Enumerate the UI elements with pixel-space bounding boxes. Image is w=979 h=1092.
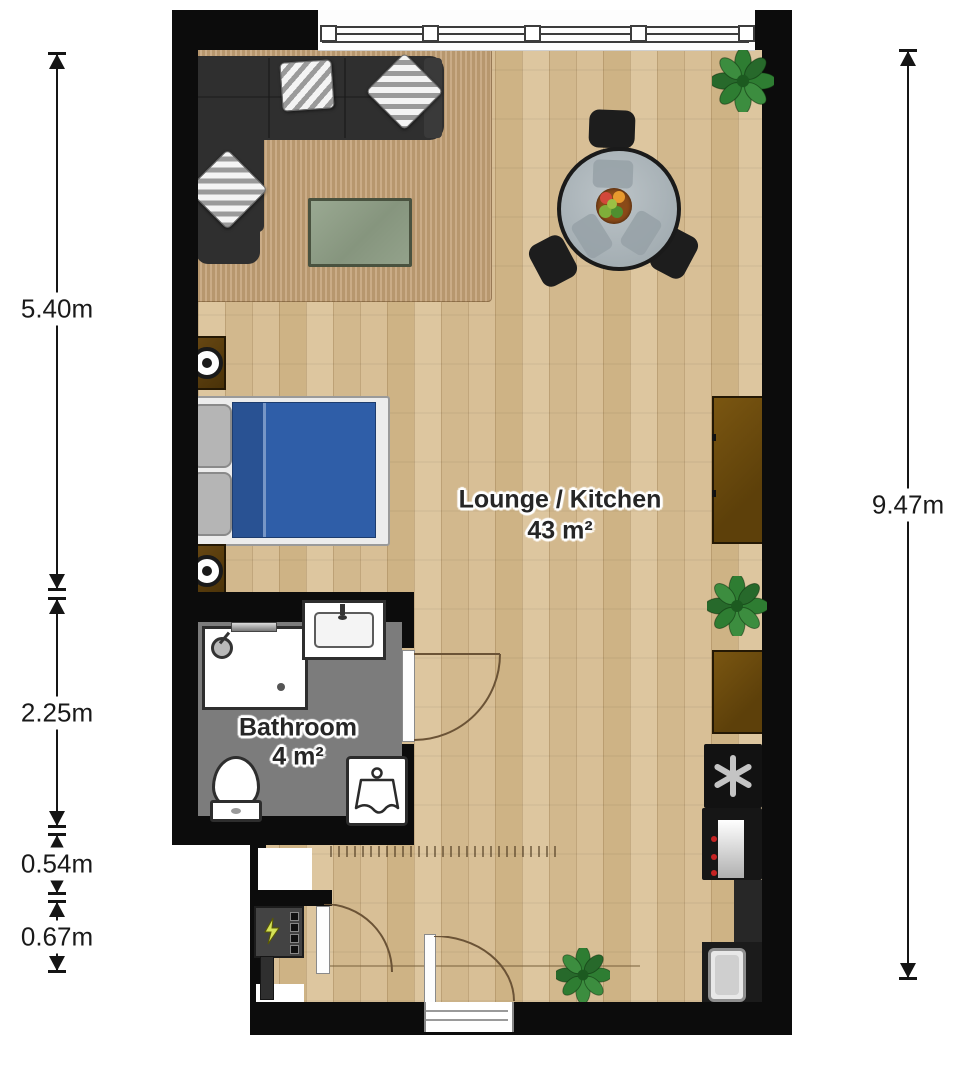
sideboard-icon bbox=[712, 650, 766, 734]
sofa-seam bbox=[344, 58, 346, 138]
plant-icon bbox=[556, 948, 610, 1002]
lamp-center bbox=[202, 358, 212, 368]
lamp-center bbox=[202, 566, 212, 576]
coffee-table-icon bbox=[308, 198, 412, 267]
electrical-panel-icon bbox=[254, 906, 304, 958]
dim-arrow-down bbox=[49, 956, 65, 971]
duvet-fold bbox=[263, 403, 266, 537]
duvet-icon bbox=[232, 402, 376, 538]
exterior-wall-left bbox=[172, 10, 198, 845]
placemat bbox=[593, 159, 634, 188]
fruit bbox=[607, 199, 617, 209]
sideboard-icon bbox=[712, 396, 766, 544]
floor-fringe bbox=[330, 846, 562, 857]
shower-icon bbox=[202, 626, 308, 710]
cable-duct bbox=[260, 956, 274, 1000]
drain bbox=[277, 683, 285, 691]
burner-knob bbox=[711, 836, 717, 842]
dim-arrow-down bbox=[49, 811, 65, 826]
lounge-area-label: 43 m² bbox=[527, 517, 592, 546]
bathroom-area-label: 4 m² bbox=[272, 743, 323, 772]
oven-door bbox=[718, 820, 744, 878]
dimension-label: 0.54m bbox=[17, 848, 97, 881]
entrance-threshold bbox=[424, 1002, 514, 1032]
kitchen-sink-unit bbox=[702, 942, 762, 1002]
dim-arrow-down bbox=[900, 963, 916, 978]
bed-pillow-icon bbox=[192, 404, 232, 468]
door-swing-arc-icon bbox=[414, 652, 506, 746]
window-mullion bbox=[738, 25, 755, 42]
bathroom-label: Bathroom bbox=[239, 714, 357, 743]
burner-knob bbox=[711, 854, 717, 860]
dimension-label: 2.25m bbox=[17, 697, 97, 730]
striped-pillow-icon bbox=[279, 59, 334, 112]
contact bbox=[290, 945, 299, 954]
sofa-seam bbox=[268, 58, 270, 138]
handle bbox=[712, 490, 716, 497]
toilet-tank bbox=[210, 800, 262, 822]
asterisk-icon bbox=[711, 754, 755, 798]
lightning-bolt-icon bbox=[262, 917, 282, 945]
lounge-label: Lounge / Kitchen bbox=[459, 486, 662, 515]
flush-button bbox=[231, 808, 241, 814]
window-icon bbox=[318, 10, 755, 51]
threshold-line bbox=[426, 1019, 508, 1021]
window-mullion bbox=[422, 25, 439, 42]
contact bbox=[290, 934, 299, 943]
burner-knob bbox=[711, 870, 717, 876]
dim-arrow-up bbox=[49, 54, 65, 69]
outside-area bbox=[150, 845, 250, 1035]
hall-door-header-wall bbox=[250, 890, 332, 906]
bed-pillow-icon bbox=[192, 472, 232, 536]
window-mullion bbox=[320, 25, 337, 42]
oven-icon bbox=[702, 808, 762, 880]
contact bbox=[290, 912, 299, 921]
contact bbox=[290, 923, 299, 932]
exterior-wall-bottom bbox=[250, 1002, 792, 1035]
dining-chair-icon bbox=[588, 109, 635, 149]
kitchen-sink-icon bbox=[708, 948, 746, 1002]
dim-arrow-up bbox=[49, 599, 65, 614]
corner-sofa-foot bbox=[196, 228, 260, 264]
fruit-bowl-icon bbox=[596, 188, 632, 224]
freezer-asterisk-icon bbox=[704, 744, 762, 808]
kitchen-counter-icon bbox=[734, 880, 762, 942]
dimension-label: 0.67m bbox=[17, 921, 97, 954]
dim-arrow-up bbox=[900, 51, 916, 66]
window-mullion bbox=[630, 25, 647, 42]
wall-niche bbox=[258, 848, 312, 890]
exterior-wall-right bbox=[762, 10, 792, 1035]
plant-icon bbox=[712, 50, 774, 112]
washing-machine-icon bbox=[346, 756, 408, 826]
threshold-line bbox=[426, 1010, 508, 1012]
dimension-label: 5.40m bbox=[17, 293, 97, 326]
tap bbox=[340, 604, 345, 615]
door-swing-arc-icon bbox=[434, 936, 518, 1005]
floor-plan: Bathroom 4 m² bbox=[0, 0, 979, 1092]
tap-dot bbox=[338, 615, 347, 620]
handle bbox=[712, 434, 716, 441]
duvet-flap bbox=[233, 403, 263, 537]
door-swing-arc-icon bbox=[324, 904, 396, 976]
sink-basin bbox=[715, 955, 739, 995]
dimension-label: 9.47m bbox=[868, 489, 948, 522]
dim-arrow-up bbox=[49, 902, 65, 917]
washbasin-icon bbox=[302, 600, 386, 660]
window-mullion bbox=[524, 25, 541, 42]
dim-arrow-down bbox=[49, 574, 65, 589]
plant-icon bbox=[707, 576, 767, 636]
shower-bar bbox=[231, 622, 277, 632]
